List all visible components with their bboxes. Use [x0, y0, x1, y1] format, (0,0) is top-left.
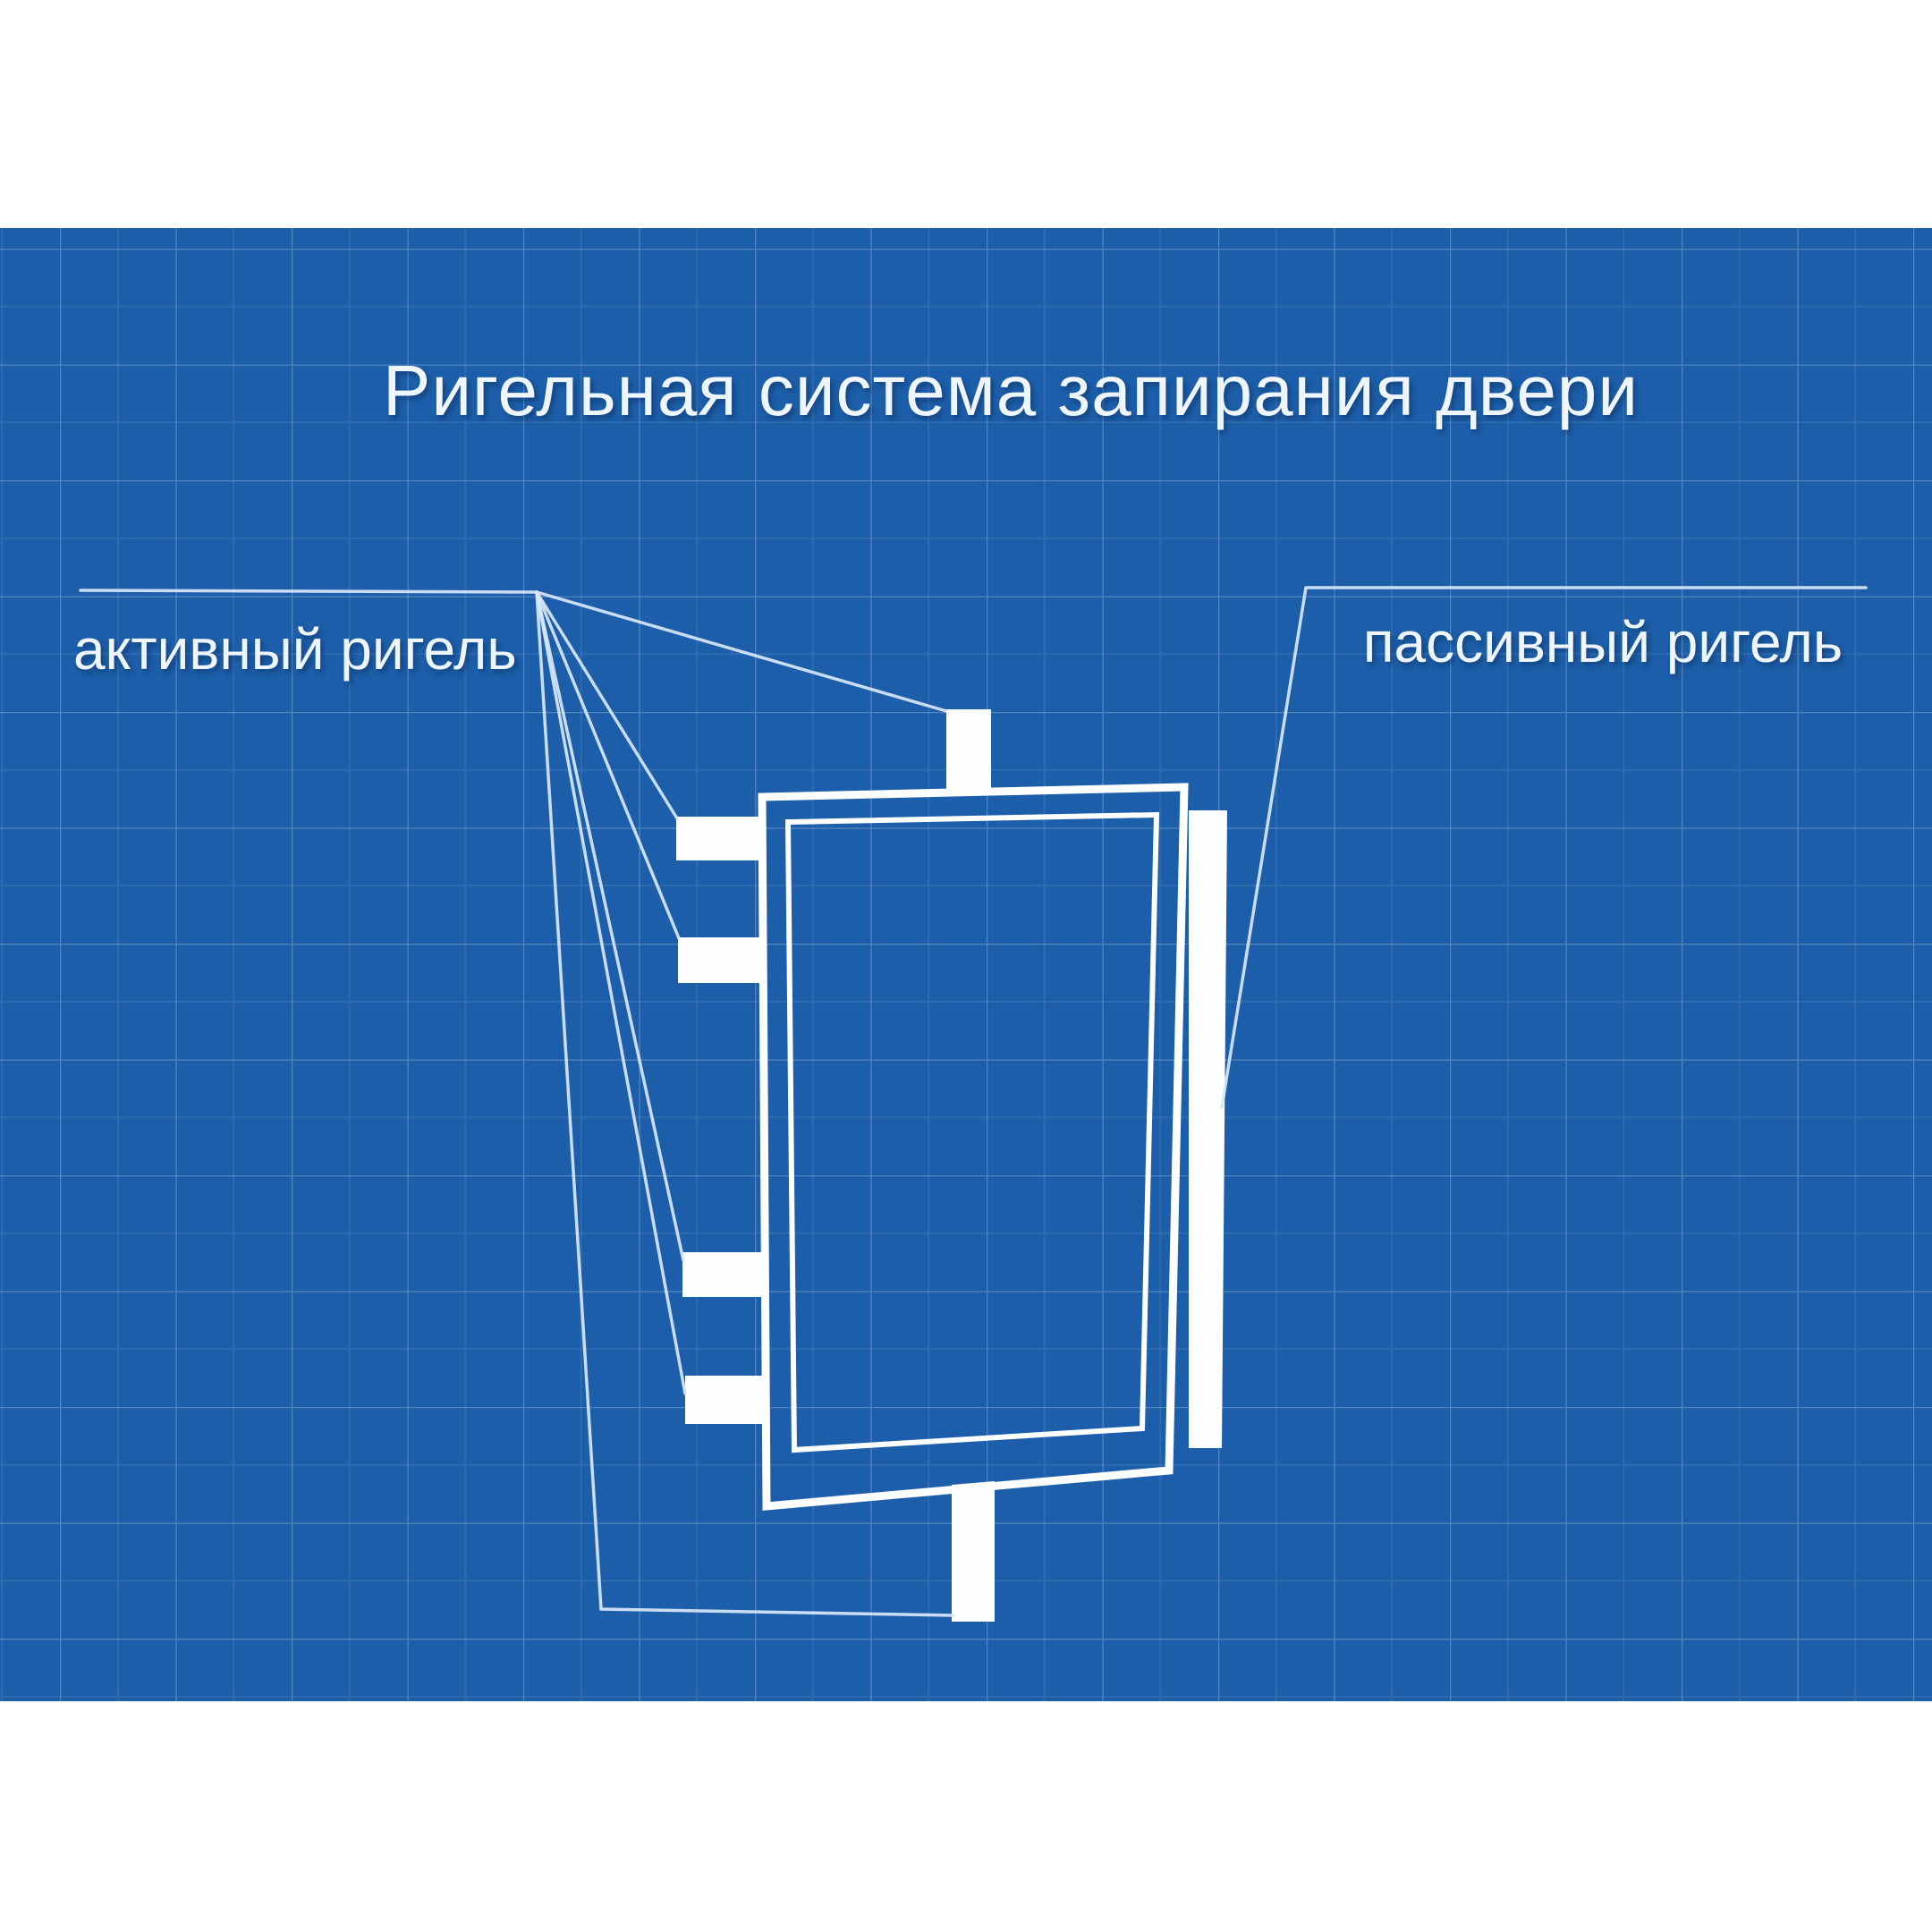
passive-bolt-label: пассивный ригель: [1363, 610, 1843, 674]
bolt-top: [946, 709, 991, 792]
bolt-left-1: [676, 817, 764, 860]
bolt-left-3: [682, 1252, 764, 1297]
diagram-title: Ригельная система запирания двери: [383, 351, 1639, 430]
passive-bolt-bar: [1189, 810, 1227, 1448]
bolt-left-2: [678, 937, 764, 983]
active-label-line: [80, 590, 537, 592]
bolt-left-4: [685, 1376, 764, 1424]
blueprint-sheet: [0, 228, 1932, 1701]
bolt-bottom: [952, 1481, 995, 1622]
active-bolt-label: активный ригель: [73, 617, 517, 682]
blueprint-grid: [0, 228, 1932, 1701]
blueprint-figure: Ригельная система запирания двери активн…: [0, 0, 1932, 1932]
